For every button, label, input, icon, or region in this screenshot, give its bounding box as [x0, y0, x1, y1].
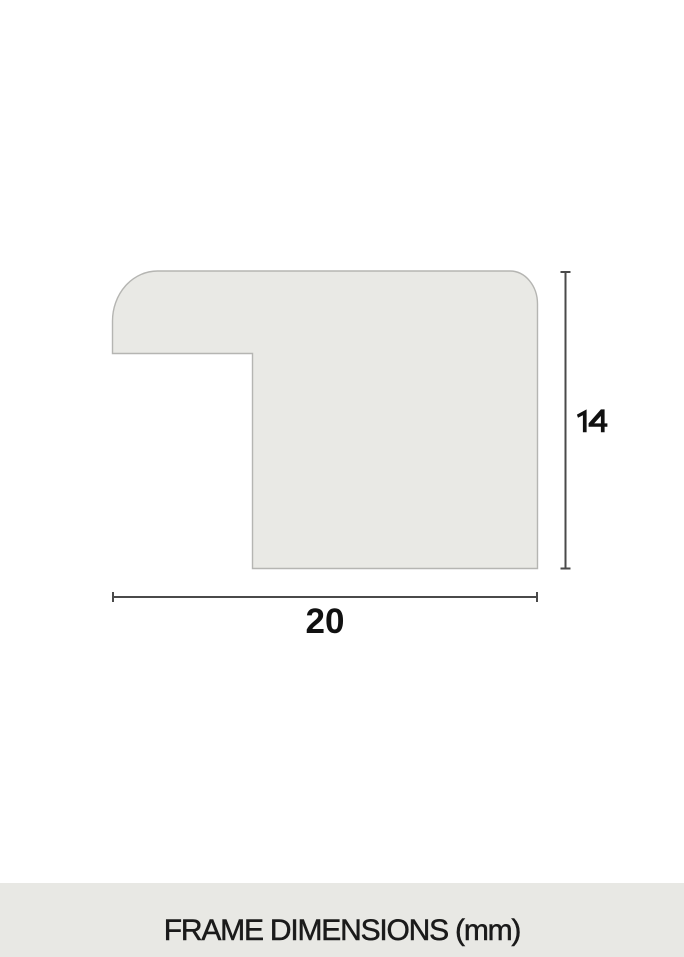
svg-text:20: 20: [306, 602, 345, 641]
svg-text:FRAME DIMENSIONS (mm): FRAME DIMENSIONS (mm): [164, 914, 521, 947]
